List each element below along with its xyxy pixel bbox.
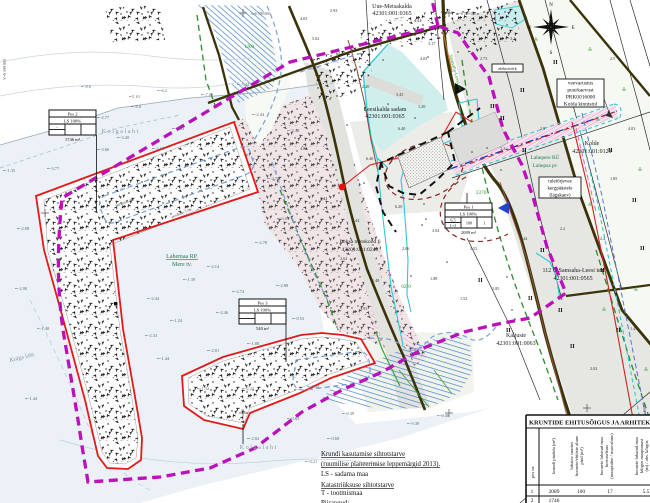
svg-text:5.02: 5.02	[312, 36, 319, 41]
svg-text:2.5: 2.5	[610, 56, 615, 61]
svg-text:Kolda kinnistul: Kolda kinnistul	[564, 102, 598, 108]
svg-text:4.03: 4.03	[628, 126, 635, 131]
svg-text:-0.68: -0.68	[330, 436, 340, 441]
svg-text:17: 17	[607, 489, 613, 495]
svg-text:2.06: 2.06	[402, 246, 409, 251]
svg-text:2089 m²: 2089 m²	[461, 230, 477, 235]
svg-text:x=6 599 600: x=6 599 600	[457, 12, 476, 16]
svg-text:-2.08: -2.08	[20, 226, 30, 231]
svg-text:II: II	[640, 246, 645, 252]
svg-text:2: 2	[531, 498, 534, 503]
svg-text:-2.46: -2.46	[219, 310, 229, 315]
svg-text:KRUNTIDE EHITUSÕIGUS JA ARHITE: KRUNTIDE EHITUSÕIGUS JA ARHITEKTUUR	[529, 419, 650, 427]
svg-text:Lahepsa pv: Lahepsa pv	[533, 163, 558, 169]
svg-text:-2.02: -2.02	[250, 436, 259, 441]
svg-text:krundi pindala (m²): krundi pindala (m²)	[551, 438, 556, 474]
svg-text:5.5: 5.5	[643, 489, 650, 495]
svg-text:1200: 1200	[244, 45, 255, 50]
svg-text:x=6 599 600: x=6 599 600	[251, 12, 270, 16]
svg-text:3370: 3370	[476, 190, 487, 196]
svg-text:100: 100	[466, 221, 472, 226]
svg-text:T - tootmismaa: T - tootmismaa	[321, 490, 362, 497]
svg-text:LS 100%: LS 100%	[460, 211, 477, 216]
svg-text:II: II	[478, 278, 483, 284]
svg-text:42301:001:0365: 42301:001:0365	[365, 114, 404, 120]
svg-text:Uue-Metsakalda: Uue-Metsakalda	[372, 4, 412, 10]
svg-text:-0.21: -0.21	[308, 459, 317, 464]
svg-text:3.1: 3.1	[510, 36, 515, 41]
svg-text:-2.10: -2.10	[155, 146, 165, 151]
svg-text:1.85: 1.85	[492, 286, 499, 291]
svg-text:(m) / abs. kõrgus: (m) / abs. kõrgus	[644, 440, 649, 471]
svg-text:42301:001:0565: 42301:001:0565	[553, 276, 592, 282]
svg-text:II: II	[540, 248, 545, 254]
svg-text:II: II	[522, 148, 527, 154]
svg-text:Pos 2: Pos 2	[67, 111, 78, 116]
svg-text:-1.44: -1.44	[28, 396, 38, 401]
svg-text:Katastriüksuse sihtotstarve: Katastriüksuse sihtotstarve	[321, 482, 394, 489]
svg-text:veevarustus: veevarustus	[568, 81, 593, 87]
svg-text:-2.00: -2.00	[18, 286, 28, 291]
svg-text:II: II	[570, 344, 575, 350]
svg-text:Lahepere RÜ: Lahepere RÜ	[531, 154, 560, 161]
svg-text:2.8: 2.8	[540, 126, 545, 131]
svg-text:4.44: 4.44	[352, 218, 360, 223]
svg-text:3.3: 3.3	[500, 146, 505, 151]
svg-text:4.83: 4.83	[300, 146, 307, 151]
svg-text:Leesikalda sadam: Leesikalda sadam	[364, 107, 407, 113]
svg-text:1.93: 1.93	[360, 306, 367, 311]
svg-text:LS - sadama maa: LS - sadama maa	[321, 471, 368, 478]
svg-text:3.04: 3.04	[432, 228, 440, 233]
svg-text:4.44: 4.44	[414, 18, 422, 23]
svg-text:II: II	[632, 198, 637, 204]
svg-text:-8.0: -8.0	[134, 104, 142, 109]
svg-text:1: 1	[483, 221, 485, 226]
svg-text:PRK0016000: PRK0016000	[566, 95, 596, 101]
svg-text:5.10: 5.10	[132, 94, 140, 99]
svg-text:1.44: 1.44	[630, 326, 638, 331]
svg-text:6.20: 6.20	[395, 204, 402, 209]
svg-text:-2.74: -2.74	[235, 289, 245, 294]
svg-text:6.40: 6.40	[398, 126, 405, 131]
svg-text:pos nr.: pos nr.	[530, 466, 535, 478]
svg-text:II: II	[490, 104, 495, 110]
svg-text:-1.24: -1.24	[173, 318, 183, 323]
svg-text:puurkaevust: puurkaevust	[567, 88, 594, 94]
svg-text:II: II	[520, 88, 525, 94]
svg-text:Kaljuste: Kaljuste	[506, 333, 526, 339]
svg-text:-2.63: -2.63	[175, 126, 185, 131]
svg-text:4.03: 4.03	[300, 16, 307, 21]
svg-text:2.73: 2.73	[480, 56, 487, 61]
svg-text:2089: 2089	[549, 489, 560, 495]
svg-text:2.20: 2.20	[362, 84, 369, 89]
svg-text:-2.33: -2.33	[148, 333, 158, 338]
svg-text:-1.39: -1.39	[186, 277, 196, 282]
svg-text:2.4: 2.4	[600, 236, 606, 241]
svg-text:Pos 1: Pos 1	[463, 204, 474, 209]
svg-text:1.85: 1.85	[610, 176, 617, 181]
svg-text:-2.22: -2.22	[245, 386, 254, 391]
svg-text:W: W	[527, 26, 532, 31]
svg-text:-3.44: -3.44	[290, 128, 300, 133]
svg-text:4.40: 4.40	[338, 51, 345, 56]
svg-text:6.40: 6.40	[366, 156, 373, 161]
svg-text:-2.88: -2.88	[279, 283, 289, 288]
svg-text:-5.44: -5.44	[240, 82, 250, 87]
svg-text:-1.44: -1.44	[160, 356, 170, 361]
svg-text:Mere tv.: Mere tv.	[172, 262, 192, 268]
svg-text:Krundi kasutamise sihtotstarve: Krundi kasutamise sihtotstarve	[321, 451, 405, 458]
svg-text:-1.88: -1.88	[250, 341, 260, 346]
svg-text:II: II	[558, 308, 563, 314]
svg-text:2.02: 2.02	[590, 366, 597, 371]
svg-text:112 Ü Samsaha-Leesi tee: 112 Ü Samsaha-Leesi tee	[543, 267, 604, 274]
svg-text:tuletõrjevee: tuletõrjevee	[548, 180, 572, 185]
svg-text:-3.60: -3.60	[100, 147, 110, 152]
svg-text:kergpäästele: kergpäästele	[548, 187, 574, 192]
svg-text:-0.39: -0.39	[345, 411, 355, 416]
svg-text:Lahemaa RP.: Lahemaa RP.	[166, 254, 198, 260]
svg-text:-1.35: -1.35	[6, 168, 16, 173]
svg-text:-2.73: -2.73	[270, 176, 280, 181]
svg-text:(maapealne / maa-alune): (maapealne / maa-alune)	[609, 433, 614, 479]
svg-text:540 m²: 540 m²	[256, 326, 270, 331]
svg-text:E: E	[571, 26, 574, 31]
svg-text:-2.44: -2.44	[150, 296, 160, 301]
svg-text:K o l g a l a h t: K o l g a l a h t	[102, 128, 139, 135]
svg-text:2.93: 2.93	[330, 8, 337, 13]
svg-text:4.03: 4.03	[420, 56, 427, 61]
svg-text:-2.78: -2.78	[258, 240, 268, 245]
svg-text:-0.48: -0.48	[440, 413, 450, 418]
svg-text:II: II	[500, 116, 505, 122]
svg-text:-2.01: -2.01	[210, 348, 219, 353]
svg-text:LS 100%: LS 100%	[254, 307, 271, 312]
svg-text:-2.44: -2.44	[255, 112, 265, 117]
svg-text:-8.6: -8.6	[84, 84, 92, 89]
svg-text:42301:001:0063: 42301:001:0063	[496, 341, 535, 347]
svg-text:2.2: 2.2	[560, 226, 565, 231]
svg-text:3.44: 3.44	[320, 196, 328, 201]
svg-text:1.20: 1.20	[418, 104, 425, 109]
svg-text:43201:001:0240: 43201:001:0240	[342, 247, 379, 253]
svg-text:42301:001:0121: 42301:001:0121	[572, 149, 611, 155]
svg-text:42301:001:0365: 42301:001:0365	[372, 11, 411, 17]
svg-text:2.62: 2.62	[340, 256, 347, 261]
svg-text:2.44: 2.44	[520, 236, 528, 241]
svg-text:II: II	[528, 296, 533, 302]
svg-text:1746: 1746	[549, 498, 560, 503]
svg-text:-7.10: -7.10	[204, 92, 214, 97]
svg-text:1.52: 1.52	[460, 296, 467, 301]
svg-text:-1.48: -1.48	[40, 326, 50, 331]
svg-text:3.45: 3.45	[396, 92, 403, 97]
svg-text:-0.63: -0.63	[290, 416, 300, 421]
svg-text:-0.55: -0.55	[295, 316, 305, 321]
svg-text:1.88: 1.88	[430, 276, 437, 281]
svg-text:(ruumilise planeerimise leppem: (ruumilise planeerimise leppemärgid 2013…	[321, 461, 440, 468]
svg-text:-3.20: -3.20	[120, 135, 130, 140]
svg-text:-2.14: -2.14	[210, 264, 220, 269]
svg-text:(lägakaev): (lägakaev)	[549, 194, 570, 199]
svg-text:Pos 3: Pos 3	[257, 300, 268, 305]
svg-text:-1.32: -1.32	[200, 386, 209, 391]
svg-text:S: S	[550, 51, 553, 56]
svg-text:1746 m²: 1746 m²	[65, 137, 81, 142]
svg-text:II: II	[616, 328, 621, 334]
svg-text:1: 1	[531, 489, 534, 495]
svg-text:-0.95: -0.95	[310, 384, 320, 389]
svg-text:K o l g a l a h t: K o l g a l a h t	[240, 444, 277, 451]
svg-text:N: N	[549, 3, 553, 8]
svg-text:3.17: 3.17	[428, 41, 435, 46]
svg-text:1+1: 1+1	[450, 223, 457, 228]
svg-text:-3.77: -3.77	[50, 166, 60, 171]
svg-text:-9.39: -9.39	[410, 421, 420, 426]
svg-text:2.52: 2.52	[470, 246, 477, 251]
svg-text:pind (m²): pind (m²)	[579, 447, 584, 465]
svg-text:Loksa metskond 6: Loksa metskond 6	[339, 239, 380, 245]
svg-text:·: ·	[246, 313, 247, 318]
svg-text:-3.05: -3.05	[280, 216, 290, 221]
svg-text:-6.2: -6.2	[160, 88, 167, 93]
svg-text:Y=6 599 800: Y=6 599 800	[2, 59, 7, 80]
svg-text:Kolde: Kolde	[585, 141, 600, 147]
svg-text:II: II	[553, 60, 558, 66]
svg-text:elektrivõrk: elektrivõrk	[498, 66, 517, 71]
svg-text:62/0: 62/0	[401, 284, 411, 290]
svg-text:100: 100	[577, 489, 585, 495]
svg-text:-2.77: -2.77	[100, 115, 110, 120]
svg-text:1.48: 1.48	[372, 278, 379, 283]
svg-text:LS 100%: LS 100%	[64, 118, 81, 123]
